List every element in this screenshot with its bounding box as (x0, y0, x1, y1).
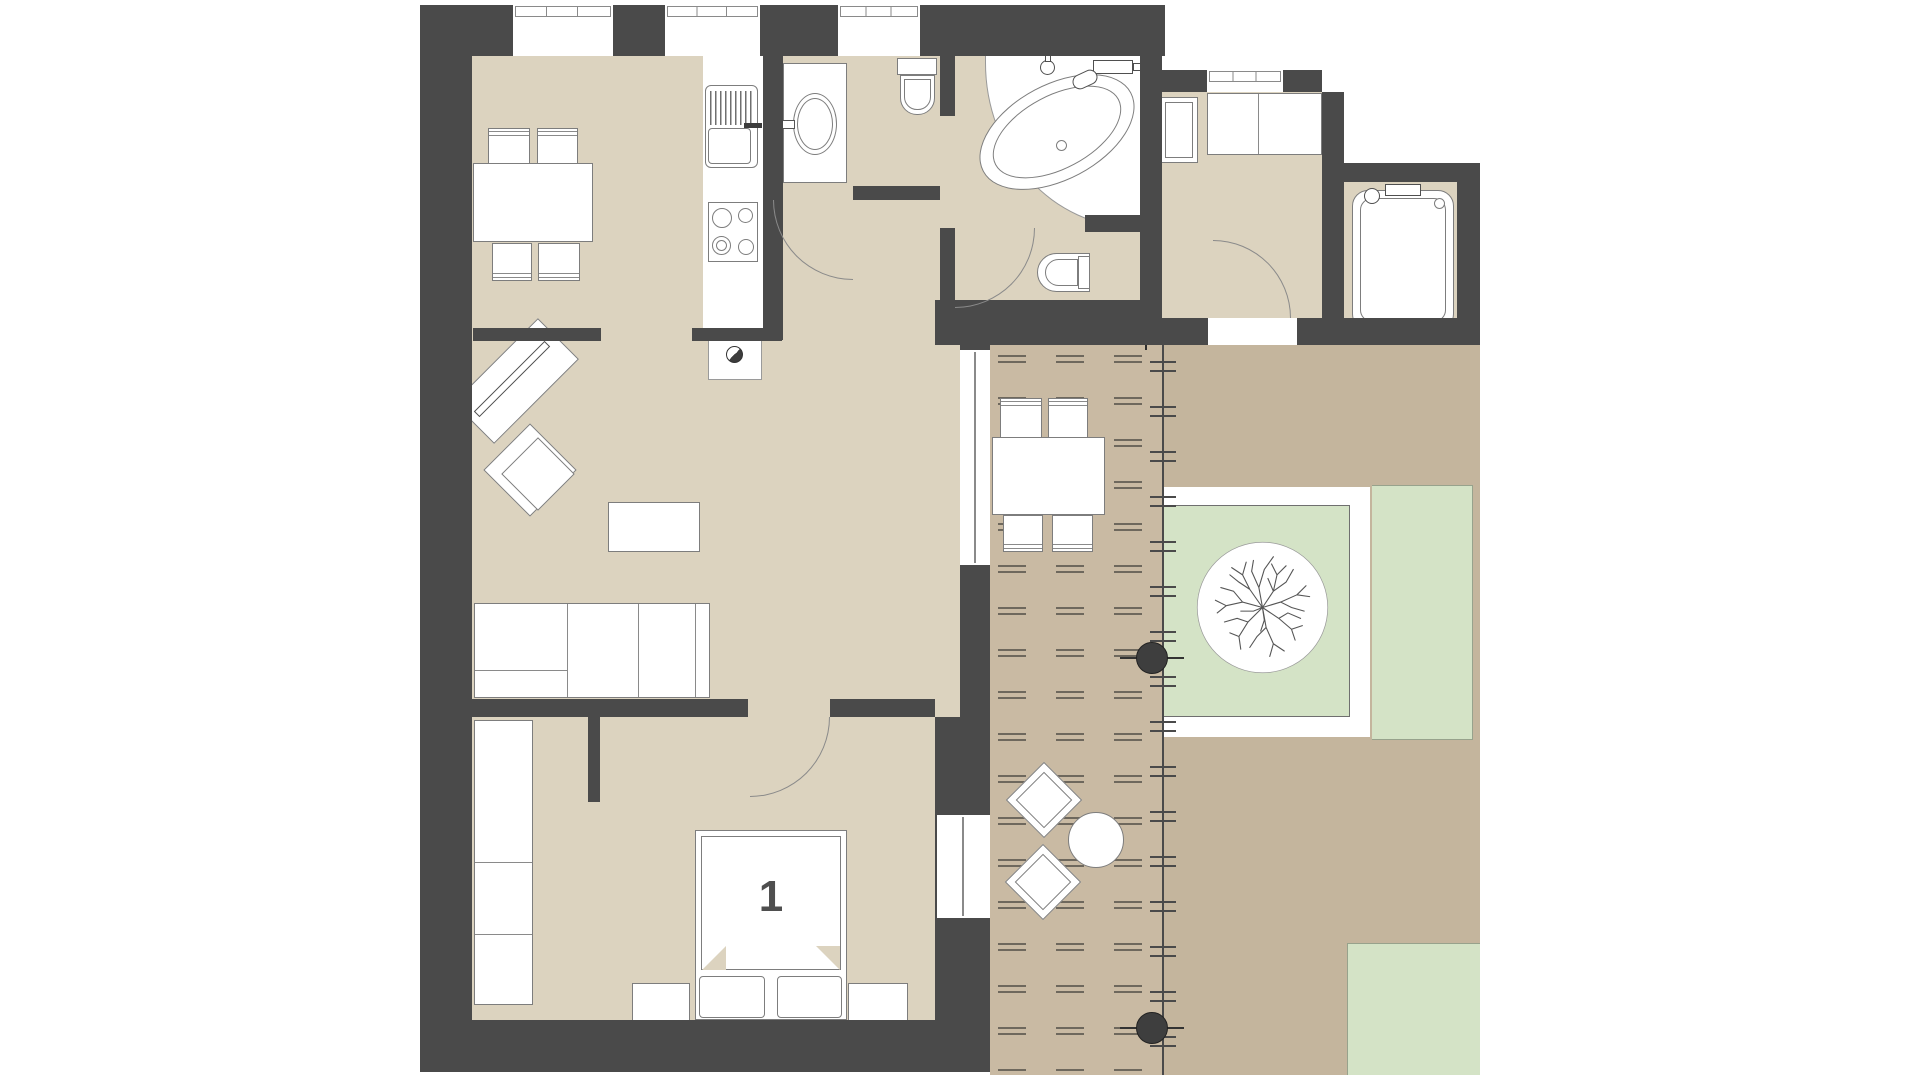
outdoor-chair (1052, 515, 1093, 552)
sink-drainboard (710, 91, 753, 125)
toilet-2-tank (1078, 256, 1090, 289)
sink-faucet-icon (744, 123, 762, 128)
wall-bottom (420, 1020, 990, 1072)
coffee-table (608, 502, 700, 552)
entry-cabinets (1207, 93, 1322, 155)
side-bathtub-inner (1360, 198, 1446, 322)
wall-entry-bottom-band (1140, 318, 1480, 345)
grass-patch-bottom (1347, 943, 1480, 1075)
entry-cabinet-divider (1258, 94, 1259, 154)
tub-drain-icon (1056, 140, 1067, 151)
pillow (699, 976, 765, 1018)
room-number-label: 1 (695, 872, 847, 922)
pergola-column-top (1136, 642, 1168, 674)
nightstand (848, 983, 908, 1023)
nightstand (632, 983, 690, 1023)
wall-left (420, 5, 472, 1072)
window-dining (513, 5, 613, 56)
outdoor-chair (1003, 515, 1043, 552)
outdoor-table (992, 437, 1105, 515)
wall-sidebath-right (1457, 163, 1480, 345)
pergola-column-bottom (1136, 1012, 1168, 1044)
tub-mixer-icon (1093, 60, 1133, 74)
round-side-table (1068, 812, 1124, 868)
sofa-seam (638, 604, 639, 697)
entry-tall-cabinet-inner (1165, 102, 1193, 158)
burner (738, 208, 753, 223)
glass-door-living-terrace (960, 350, 990, 565)
pillow (777, 976, 842, 1018)
bed-fold-corner (816, 946, 840, 970)
grass-patch-right (1372, 485, 1473, 740)
wall-wc-stub (940, 56, 955, 116)
dining-chair (537, 128, 578, 164)
dining-table (473, 163, 593, 242)
wardrobe-divider (475, 862, 532, 863)
corner-sofa (474, 603, 710, 698)
tree-icon (1190, 535, 1335, 680)
window-kitchen (665, 5, 760, 56)
floor-plan-canvas: 1 (0, 0, 1920, 1080)
side-tub-mixer-icon (1385, 184, 1421, 196)
wall-living-bedroom-left (472, 699, 748, 717)
sofa-seam (695, 604, 696, 697)
burner-inner (716, 240, 727, 251)
wall-wc-bottom (853, 186, 940, 200)
sofa-seam (567, 604, 568, 697)
outdoor-chair (1000, 398, 1042, 438)
burner (738, 239, 754, 255)
window-wc (838, 5, 920, 56)
bed-fold-corner (702, 946, 726, 970)
wall-living-bedroom-right (830, 699, 935, 717)
wardrobe-divider (475, 934, 532, 935)
tub-handle-icon (1040, 60, 1055, 75)
side-tub-handle-icon (1364, 188, 1380, 204)
glass-door-bedroom-terrace (937, 815, 990, 918)
wall-kitchen-divider (763, 56, 783, 340)
dining-chair (488, 128, 530, 164)
entry-door-opening (1208, 318, 1297, 345)
wall-stub-dining-left (473, 328, 601, 341)
wall-entry-right (1322, 92, 1344, 332)
side-tub-drain-icon (1434, 198, 1445, 209)
sink-basin (708, 128, 751, 164)
deck-edge-ticks (1150, 345, 1176, 1075)
washbasin-inner (797, 98, 833, 150)
toilet-2-inner (1045, 259, 1078, 286)
drain-symbol-icon (726, 346, 743, 363)
sofa-chaise-seam (475, 670, 567, 671)
toilet-bowl-inner (904, 79, 931, 110)
wall-stub-bedroom (588, 717, 600, 802)
window-entry (1207, 70, 1283, 92)
dining-chair (538, 243, 580, 281)
wall-bath-door-stub (940, 228, 955, 300)
burner (712, 208, 732, 228)
outdoor-chair (1048, 398, 1088, 438)
toilet-tank (897, 58, 937, 75)
dining-chair (492, 243, 532, 281)
